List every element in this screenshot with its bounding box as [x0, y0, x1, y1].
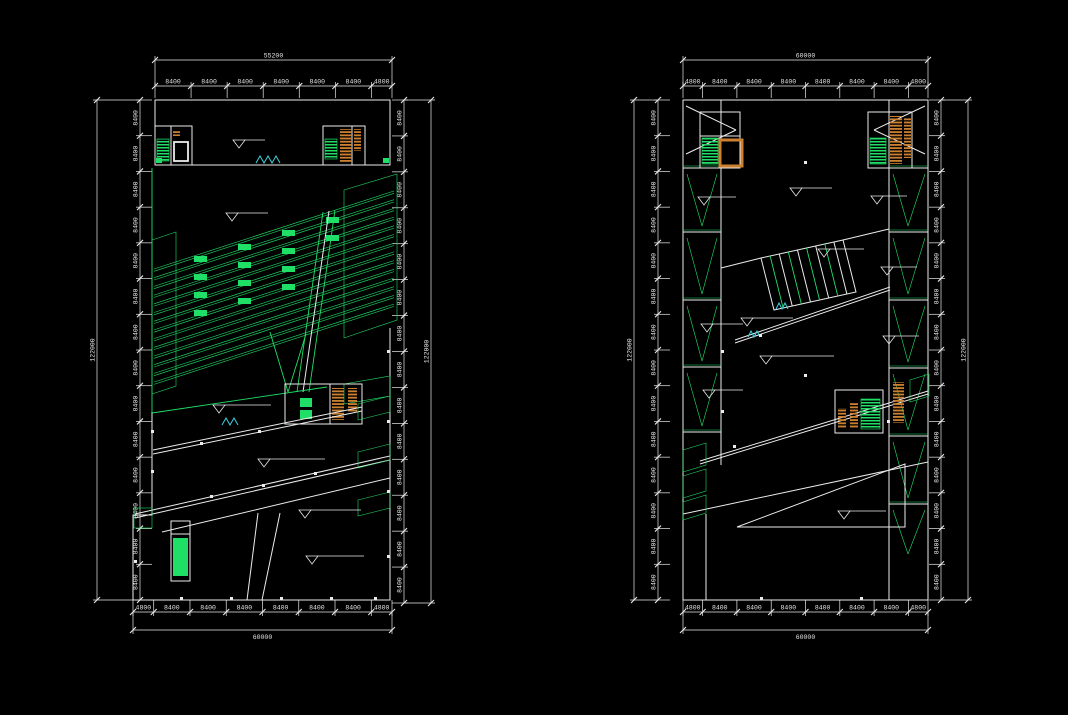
svg-text:8400: 8400 [397, 505, 404, 521]
svg-text:8400: 8400 [712, 605, 728, 612]
svg-text:8400: 8400 [651, 324, 658, 340]
svg-text:8400: 8400 [397, 290, 404, 306]
svg-text:8400: 8400 [133, 289, 140, 305]
svg-text:8400: 8400 [651, 146, 658, 162]
svg-text:8400: 8400 [397, 110, 404, 126]
svg-text:60000: 60000 [796, 634, 816, 641]
right-plan-interior-walls [683, 287, 928, 600]
svg-text:8400: 8400 [133, 324, 140, 340]
svg-text:8400: 8400 [133, 110, 140, 126]
svg-text:8400: 8400 [934, 539, 941, 555]
svg-text:8400: 8400 [346, 79, 362, 86]
left-plan-top-strip [155, 100, 390, 165]
svg-text:8400: 8400 [345, 605, 361, 612]
svg-text:8400: 8400 [133, 253, 140, 269]
left-plan-dim-bottom-total: 60000 [130, 612, 395, 641]
svg-text:8400: 8400 [849, 79, 865, 86]
svg-text:8400: 8400 [651, 217, 658, 233]
svg-text:4800: 4800 [685, 605, 701, 612]
svg-text:8400: 8400 [781, 605, 797, 612]
right-plan-dim-top-chain: 48008400840084008400840084004800 [680, 79, 931, 99]
svg-text:8400: 8400 [651, 539, 658, 555]
right-plan-side-rooms [683, 106, 928, 554]
right-plan-outline [683, 100, 928, 600]
svg-text:8400: 8400 [237, 605, 253, 612]
right-plan-dim-bottom-total: 60000 [680, 612, 931, 641]
svg-text:4800: 4800 [685, 79, 701, 86]
left-plan-dim-left-total: 122000 [90, 97, 141, 603]
svg-text:55200: 55200 [264, 53, 284, 60]
cad-model-space: 55200 8400840084008400840084004800 48008… [0, 0, 1068, 715]
right-plan-dim-right-chain: 8400840084008400840084008400840084008400… [929, 97, 945, 603]
svg-text:8400: 8400 [815, 79, 831, 86]
svg-text:8400: 8400 [397, 362, 404, 378]
svg-text:8400: 8400 [883, 79, 899, 86]
left-plan-dim-bottom-chain: 48008400840084008400840084004800 [130, 600, 395, 616]
level-markers [213, 140, 919, 564]
svg-text:8400: 8400 [651, 110, 658, 126]
svg-text:8400: 8400 [201, 79, 217, 86]
svg-text:8400: 8400 [934, 574, 941, 590]
svg-text:8400: 8400 [651, 253, 658, 269]
svg-text:8400: 8400 [934, 146, 941, 162]
svg-text:122000: 122000 [90, 338, 97, 362]
svg-text:8400: 8400 [934, 110, 941, 126]
svg-text:122000: 122000 [961, 338, 968, 362]
seat-rows [154, 191, 394, 384]
svg-text:8400: 8400 [397, 541, 404, 557]
svg-text:8400: 8400 [133, 217, 140, 233]
right-plan-dim-bottom-chain: 48008400840084008400840084004800 [680, 600, 931, 616]
svg-text:8400: 8400 [651, 360, 658, 376]
svg-text:8400: 8400 [934, 360, 941, 376]
svg-text:8400: 8400 [934, 396, 941, 412]
svg-text:8400: 8400 [133, 539, 140, 555]
green-hatch-band [358, 396, 390, 420]
break-line-icon [222, 418, 238, 425]
svg-text:122000: 122000 [627, 338, 634, 362]
aisle-ramp [270, 210, 335, 392]
green-hatch-band [358, 492, 390, 516]
column-markers [134, 161, 890, 600]
svg-text:60000: 60000 [796, 53, 816, 60]
svg-text:8400: 8400 [133, 146, 140, 162]
svg-text:4800: 4800 [910, 79, 926, 86]
svg-text:4800: 4800 [136, 605, 152, 612]
elevator-shaft [171, 521, 190, 581]
svg-text:8400: 8400 [934, 289, 941, 305]
svg-text:8400: 8400 [746, 79, 762, 86]
svg-text:8400: 8400 [651, 574, 658, 590]
svg-text:8400: 8400 [815, 605, 831, 612]
svg-text:8400: 8400 [200, 605, 216, 612]
ramp-triangle [737, 464, 905, 527]
break-line-icon [256, 156, 280, 163]
svg-text:122000: 122000 [424, 340, 431, 364]
stair-core-mid [285, 384, 362, 424]
svg-text:8400: 8400 [133, 574, 140, 590]
svg-text:8400: 8400 [781, 79, 797, 86]
left-plan: 55200 8400840084008400840084004800 48008… [90, 53, 436, 642]
right-plan: 60000 48008400840084008400840084004800 4… [627, 53, 973, 642]
svg-text:8400: 8400 [397, 433, 404, 449]
svg-text:60000: 60000 [253, 634, 273, 641]
corner-mark [383, 158, 389, 163]
central-ramp [721, 229, 889, 310]
svg-text:8400: 8400 [133, 181, 140, 197]
svg-text:8400: 8400 [934, 467, 941, 483]
svg-text:8400: 8400 [746, 605, 762, 612]
green-hatch-band [358, 444, 390, 468]
svg-text:8400: 8400 [133, 467, 140, 483]
svg-text:8400: 8400 [273, 79, 289, 86]
svg-text:8400: 8400 [309, 79, 325, 86]
svg-text:8400: 8400 [397, 326, 404, 342]
svg-text:4800: 4800 [374, 605, 390, 612]
stair-core-mid-right [835, 374, 929, 433]
svg-text:8400: 8400 [934, 217, 941, 233]
cad-canvas[interactable]: 55200 8400840084008400840084004800 48008… [0, 0, 1068, 715]
ramp-lines [770, 242, 847, 308]
svg-text:8400: 8400 [934, 253, 941, 269]
left-plan-dim-left-chain: 8400840084008400840084008400840084008400… [133, 97, 153, 603]
svg-text:8400: 8400 [397, 218, 404, 234]
svg-text:8400: 8400 [651, 396, 658, 412]
svg-text:8400: 8400 [651, 467, 658, 483]
svg-text:8400: 8400 [651, 289, 658, 305]
svg-text:8400: 8400 [133, 431, 140, 447]
svg-text:8400: 8400 [273, 605, 289, 612]
svg-text:8400: 8400 [651, 181, 658, 197]
stair-core-top-right [323, 126, 365, 165]
svg-text:8400: 8400 [934, 324, 941, 340]
svg-text:8400: 8400 [133, 503, 140, 519]
svg-text:8400: 8400 [934, 503, 941, 519]
svg-text:8400: 8400 [712, 79, 728, 86]
svg-text:8400: 8400 [397, 182, 404, 198]
right-plan-dim-right-total: 122000 [941, 97, 972, 603]
svg-text:8400: 8400 [883, 605, 899, 612]
left-plan-dim-right-chain: 8400840084008400840084008400840084008400… [392, 97, 408, 606]
svg-text:8400: 8400 [651, 431, 658, 447]
svg-text:8400: 8400 [397, 397, 404, 413]
left-plan-auditorium-seating [152, 168, 397, 412]
svg-text:8400: 8400 [164, 605, 180, 612]
svg-text:8400: 8400 [309, 605, 325, 612]
left-plan-dim-right-total: 122000 [404, 97, 435, 606]
svg-text:8400: 8400 [133, 360, 140, 376]
right-plan-dim-left-chain: 8400840084008400840084008400840084008400… [651, 97, 671, 603]
svg-text:8400: 8400 [397, 146, 404, 162]
svg-text:8400: 8400 [849, 605, 865, 612]
svg-text:8400: 8400 [934, 181, 941, 197]
svg-text:8400: 8400 [651, 503, 658, 519]
svg-text:8400: 8400 [934, 431, 941, 447]
corner-mark [156, 158, 162, 163]
stair-core-top-right [868, 112, 912, 168]
svg-text:8400: 8400 [133, 396, 140, 412]
svg-text:8400: 8400 [165, 79, 181, 86]
right-plan-dim-left-total: 122000 [627, 97, 659, 603]
svg-text:8400: 8400 [397, 469, 404, 485]
svg-text:4800: 4800 [374, 79, 390, 86]
svg-text:8400: 8400 [397, 254, 404, 270]
svg-text:8400: 8400 [397, 577, 404, 593]
green-hatch-bands-left [683, 443, 706, 520]
left-plan-dim-top-chain: 8400840084008400840084004800 [152, 79, 395, 99]
svg-text:8400: 8400 [237, 79, 253, 86]
svg-text:4800: 4800 [910, 605, 926, 612]
